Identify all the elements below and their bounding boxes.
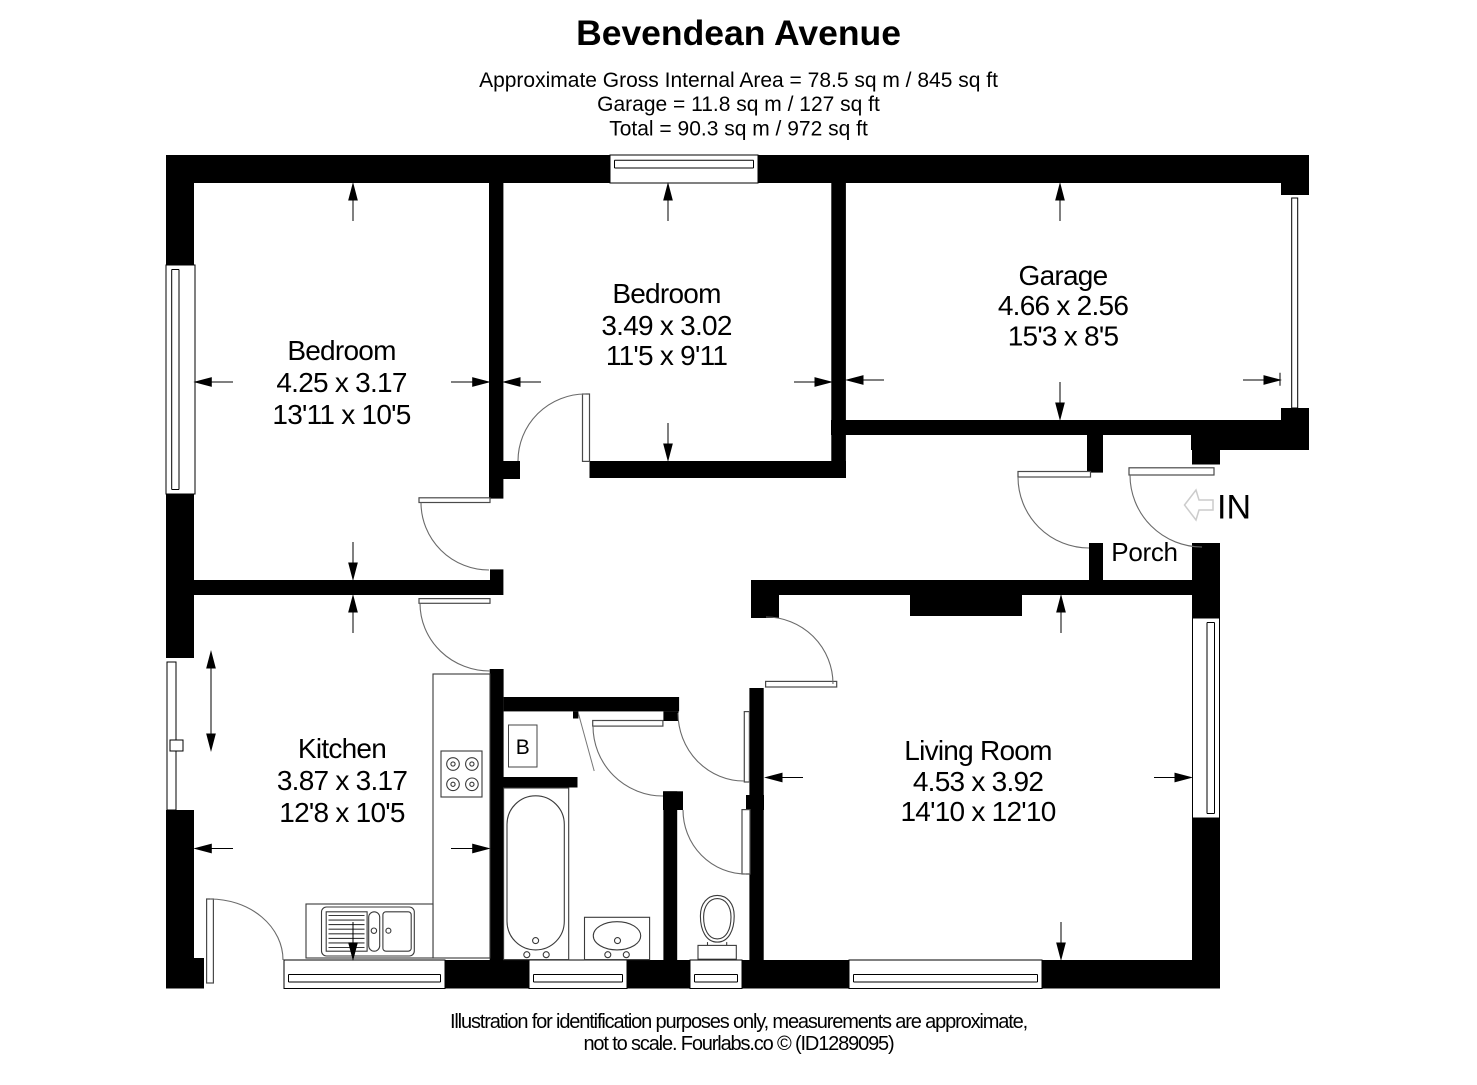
svg-text:Illustration for identificatio: Illustration for identification purposes…	[450, 1011, 1027, 1033]
svg-text:Approximate Gross Internal Are: Approximate Gross Internal Area = 78.5 s…	[479, 69, 998, 92]
svg-text:4.53 x 3.92: 4.53 x 3.92	[913, 766, 1043, 797]
svg-text:4.25 x 3.17: 4.25 x 3.17	[276, 367, 406, 398]
svg-text:Kitchen: Kitchen	[298, 733, 386, 764]
svg-text:B: B	[516, 736, 530, 759]
svg-text:15'3 x 8'5: 15'3 x 8'5	[1008, 321, 1119, 352]
svg-text:Total = 90.3 sq m / 972 sq ft: Total = 90.3 sq m / 972 sq ft	[609, 118, 868, 141]
svg-text:Bevendean Avenue: Bevendean Avenue	[576, 13, 901, 53]
svg-text:14'10 x 12'10: 14'10 x 12'10	[900, 796, 1055, 827]
svg-text:3.87 x 3.17: 3.87 x 3.17	[277, 765, 407, 796]
svg-text:Living Room: Living Room	[904, 735, 1051, 766]
svg-text:Garage = 11.8 sq m / 127 sq ft: Garage = 11.8 sq m / 127 sq ft	[597, 93, 880, 116]
svg-text:IN: IN	[1217, 489, 1251, 527]
svg-text:Bedroom: Bedroom	[612, 278, 720, 309]
svg-text:13'11 x 10'5: 13'11 x 10'5	[272, 399, 410, 430]
svg-text:Porch: Porch	[1111, 537, 1177, 567]
svg-text:12'8 x 10'5: 12'8 x 10'5	[279, 797, 405, 828]
svg-text:4.66 x 2.56: 4.66 x 2.56	[998, 290, 1128, 321]
svg-text:Garage: Garage	[1019, 260, 1108, 291]
svg-text:11'5 x 9'11: 11'5 x 9'11	[606, 340, 727, 371]
svg-text:Bedroom: Bedroom	[287, 335, 395, 366]
svg-text:3.49 x 3.02: 3.49 x 3.02	[601, 310, 731, 341]
svg-text:not to scale. Fourlabs.co © (I: not to scale. Fourlabs.co © (ID1289095)	[583, 1033, 894, 1055]
